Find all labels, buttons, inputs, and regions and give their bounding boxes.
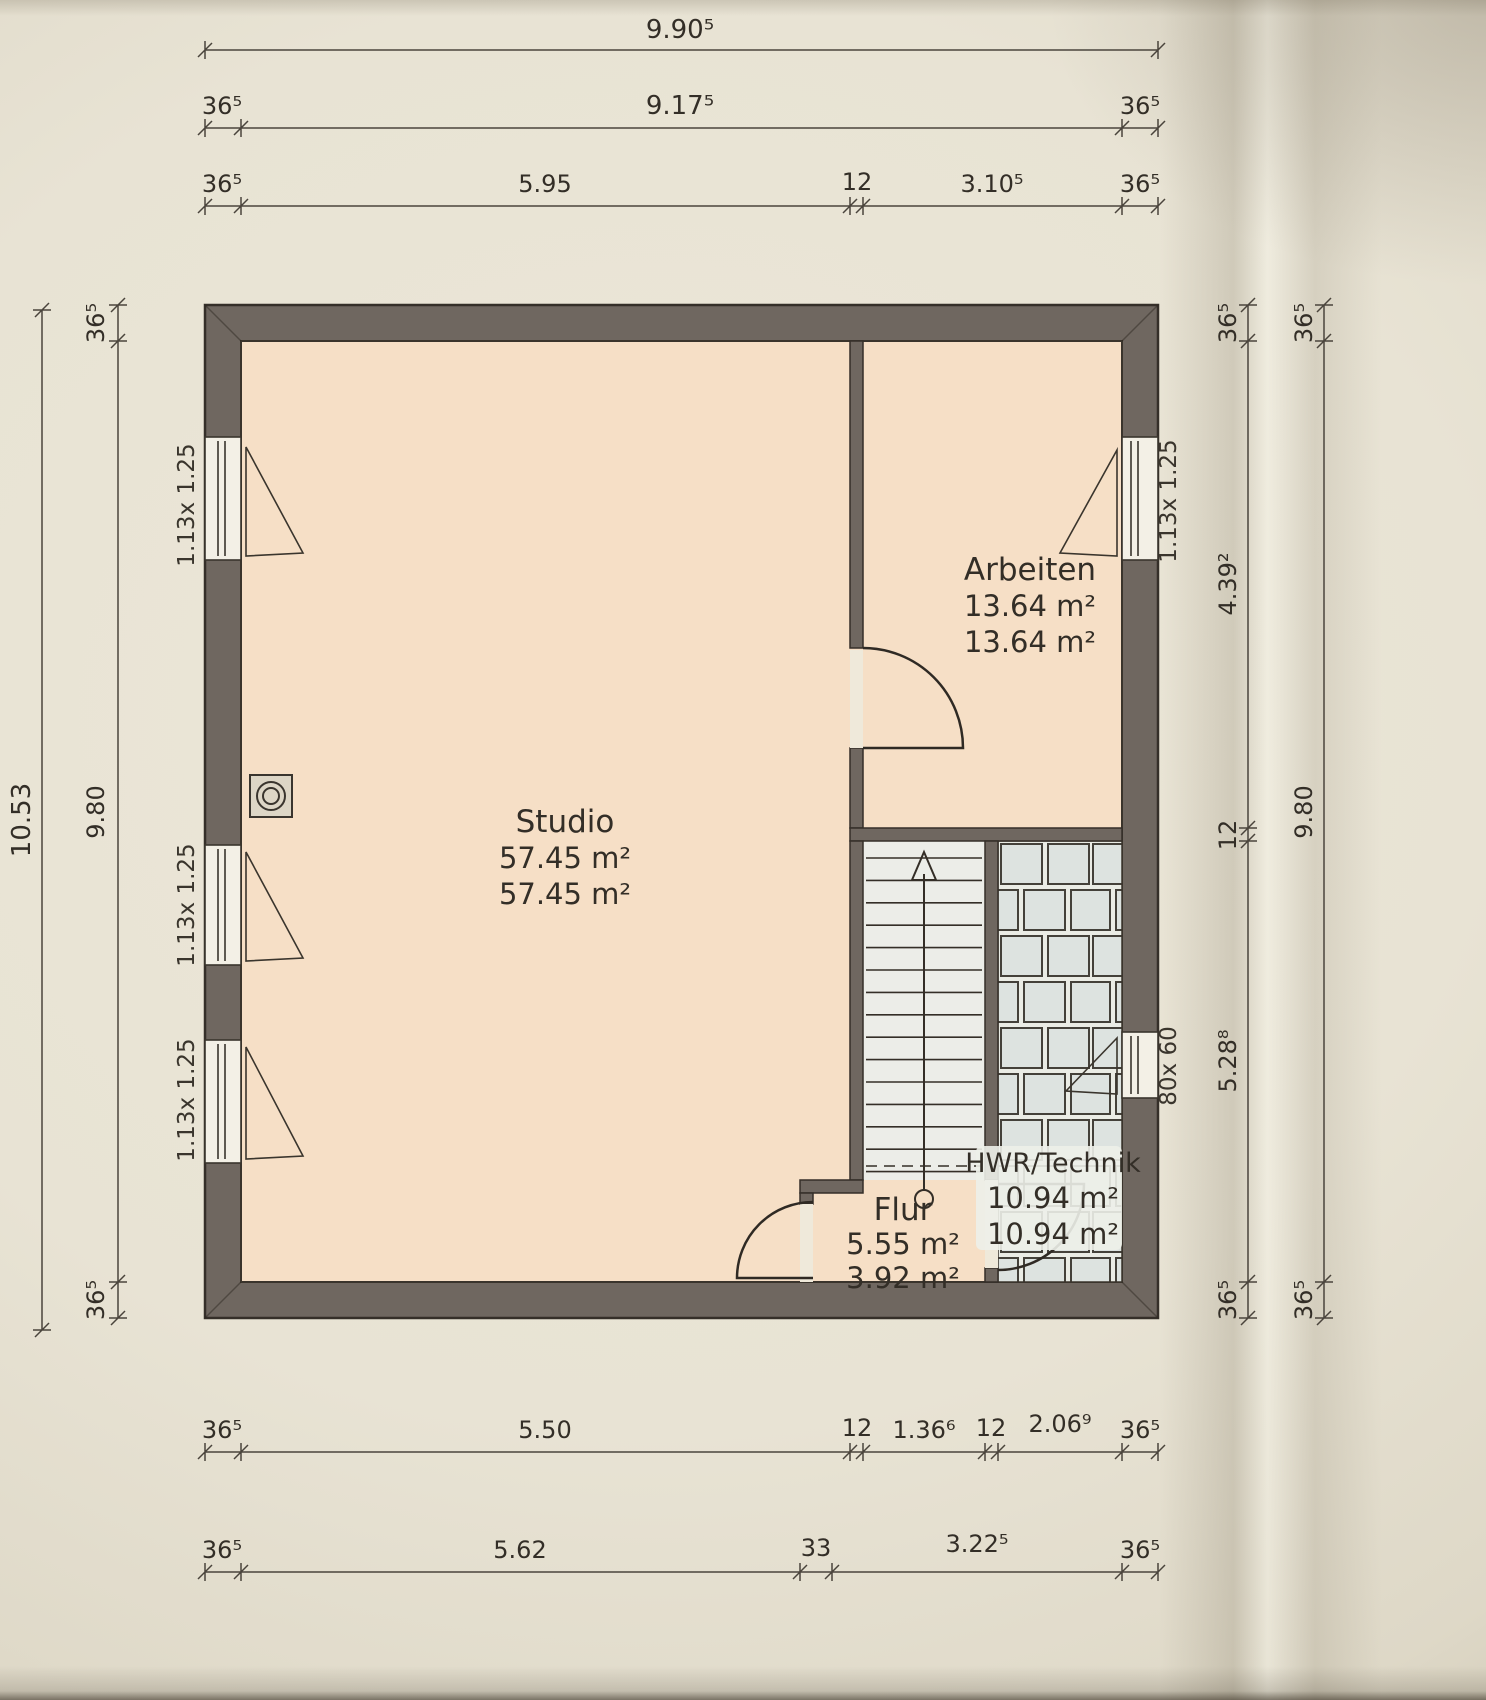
dim-label: 4.39² <box>1214 552 1242 615</box>
dim-label: 36⁵ <box>202 1536 242 1564</box>
dim-label: 36⁵ <box>1214 1280 1242 1320</box>
dim-label: 5.95 <box>518 170 571 198</box>
dim-label: 12 <box>842 168 873 196</box>
dim-top-total: 9.90⁵ <box>646 15 714 45</box>
dim-label: 3.10⁵ <box>960 170 1023 198</box>
room-area: 10.94 m² <box>987 1181 1119 1215</box>
dim-label: 1.36⁶ <box>892 1416 955 1444</box>
door-slab-arbeiten <box>850 650 863 748</box>
window-size-label: 1.13x 1.25 <box>1156 439 1182 562</box>
dim-label: 3.22⁵ <box>945 1530 1008 1558</box>
room-area: 10.94 m² <box>987 1217 1119 1251</box>
dim-label: 12 <box>1214 820 1242 851</box>
dim-label: 12 <box>842 1414 873 1442</box>
room-area: 3.92 m² <box>846 1261 960 1295</box>
dim-label: 5.28⁸ <box>1214 1029 1242 1092</box>
window-size-label: 80x 60 <box>1156 1026 1182 1105</box>
wall-arbeiten-bottom <box>850 828 1122 841</box>
dim-label: 36⁵ <box>1120 1536 1160 1564</box>
dim-label: 9.80 <box>82 785 110 838</box>
room-name: Flur <box>874 1192 933 1228</box>
room-name: Studio <box>516 804 615 840</box>
dim-label: 36⁵ <box>1214 303 1242 343</box>
dim-label: 36⁵ <box>1290 303 1318 343</box>
wall-stair-east <box>985 841 998 1180</box>
dim-label: 36⁵ <box>1120 92 1160 120</box>
room-area: 13.64 m² <box>964 625 1096 659</box>
dim-label: 36⁵ <box>82 1280 110 1320</box>
room-area: 5.55 m² <box>846 1227 960 1261</box>
wall-flur-step <box>800 1180 863 1193</box>
dim-label: 5.50 <box>518 1416 571 1444</box>
floor-plan-drawing: 9.90⁵ 36⁵ 9.17⁵ 36⁵ 36⁵ 5.95 12 3.10⁵ 36… <box>0 0 1486 1700</box>
wall-studio-arbeiten-upper <box>850 341 863 648</box>
window-size-label: 1.13x 1.25 <box>174 1038 200 1161</box>
room-area: 57.45 m² <box>499 841 631 875</box>
room-label-arbeiten: Arbeiten 13.64 m² 13.64 m² <box>964 552 1096 659</box>
dim-label: 36⁵ <box>202 1416 242 1444</box>
dim-label: 5.62 <box>493 1536 546 1564</box>
window-size-label: 1.13x 1.25 <box>174 443 200 566</box>
dim-label: 9.80 <box>1290 785 1318 838</box>
dim-label: 36⁵ <box>202 92 242 120</box>
room-name: Arbeiten <box>964 552 1096 588</box>
room-area: 13.64 m² <box>964 589 1096 623</box>
dim-label: 36⁵ <box>1120 170 1160 198</box>
dim-label: 36⁵ <box>1290 1280 1318 1320</box>
wall-studio-arbeiten-lower <box>850 748 863 828</box>
dim-label: 36⁵ <box>202 170 242 198</box>
wall-flur-east-stub <box>985 1268 998 1282</box>
dim-label: 33 <box>801 1534 832 1562</box>
door-slab-flur-studio <box>800 1204 813 1282</box>
dim-left-total: 10.53 <box>7 783 37 857</box>
scanned-floor-plan-page: 9.90⁵ 36⁵ 9.17⁵ 36⁵ 36⁵ 5.95 12 3.10⁵ 36… <box>0 0 1486 1700</box>
dim-label: 9.17⁵ <box>646 91 714 121</box>
room-area: 57.45 m² <box>499 877 631 911</box>
dim-label: 2.06⁹ <box>1028 1410 1091 1438</box>
room-label-hwr: HWR/Technik 10.94 m² 10.94 m² <box>965 1148 1141 1251</box>
room-name: HWR/Technik <box>965 1148 1141 1179</box>
chimney-symbol <box>250 775 292 817</box>
window-size-label: 1.13x 1.25 <box>174 843 200 966</box>
dim-label: 36⁵ <box>82 303 110 343</box>
room-label-studio: Studio 57.45 m² 57.45 m² <box>499 804 631 911</box>
dim-label: 36⁵ <box>1120 1416 1160 1444</box>
dim-label: 12 <box>976 1414 1007 1442</box>
wall-stair-west <box>850 841 863 1180</box>
